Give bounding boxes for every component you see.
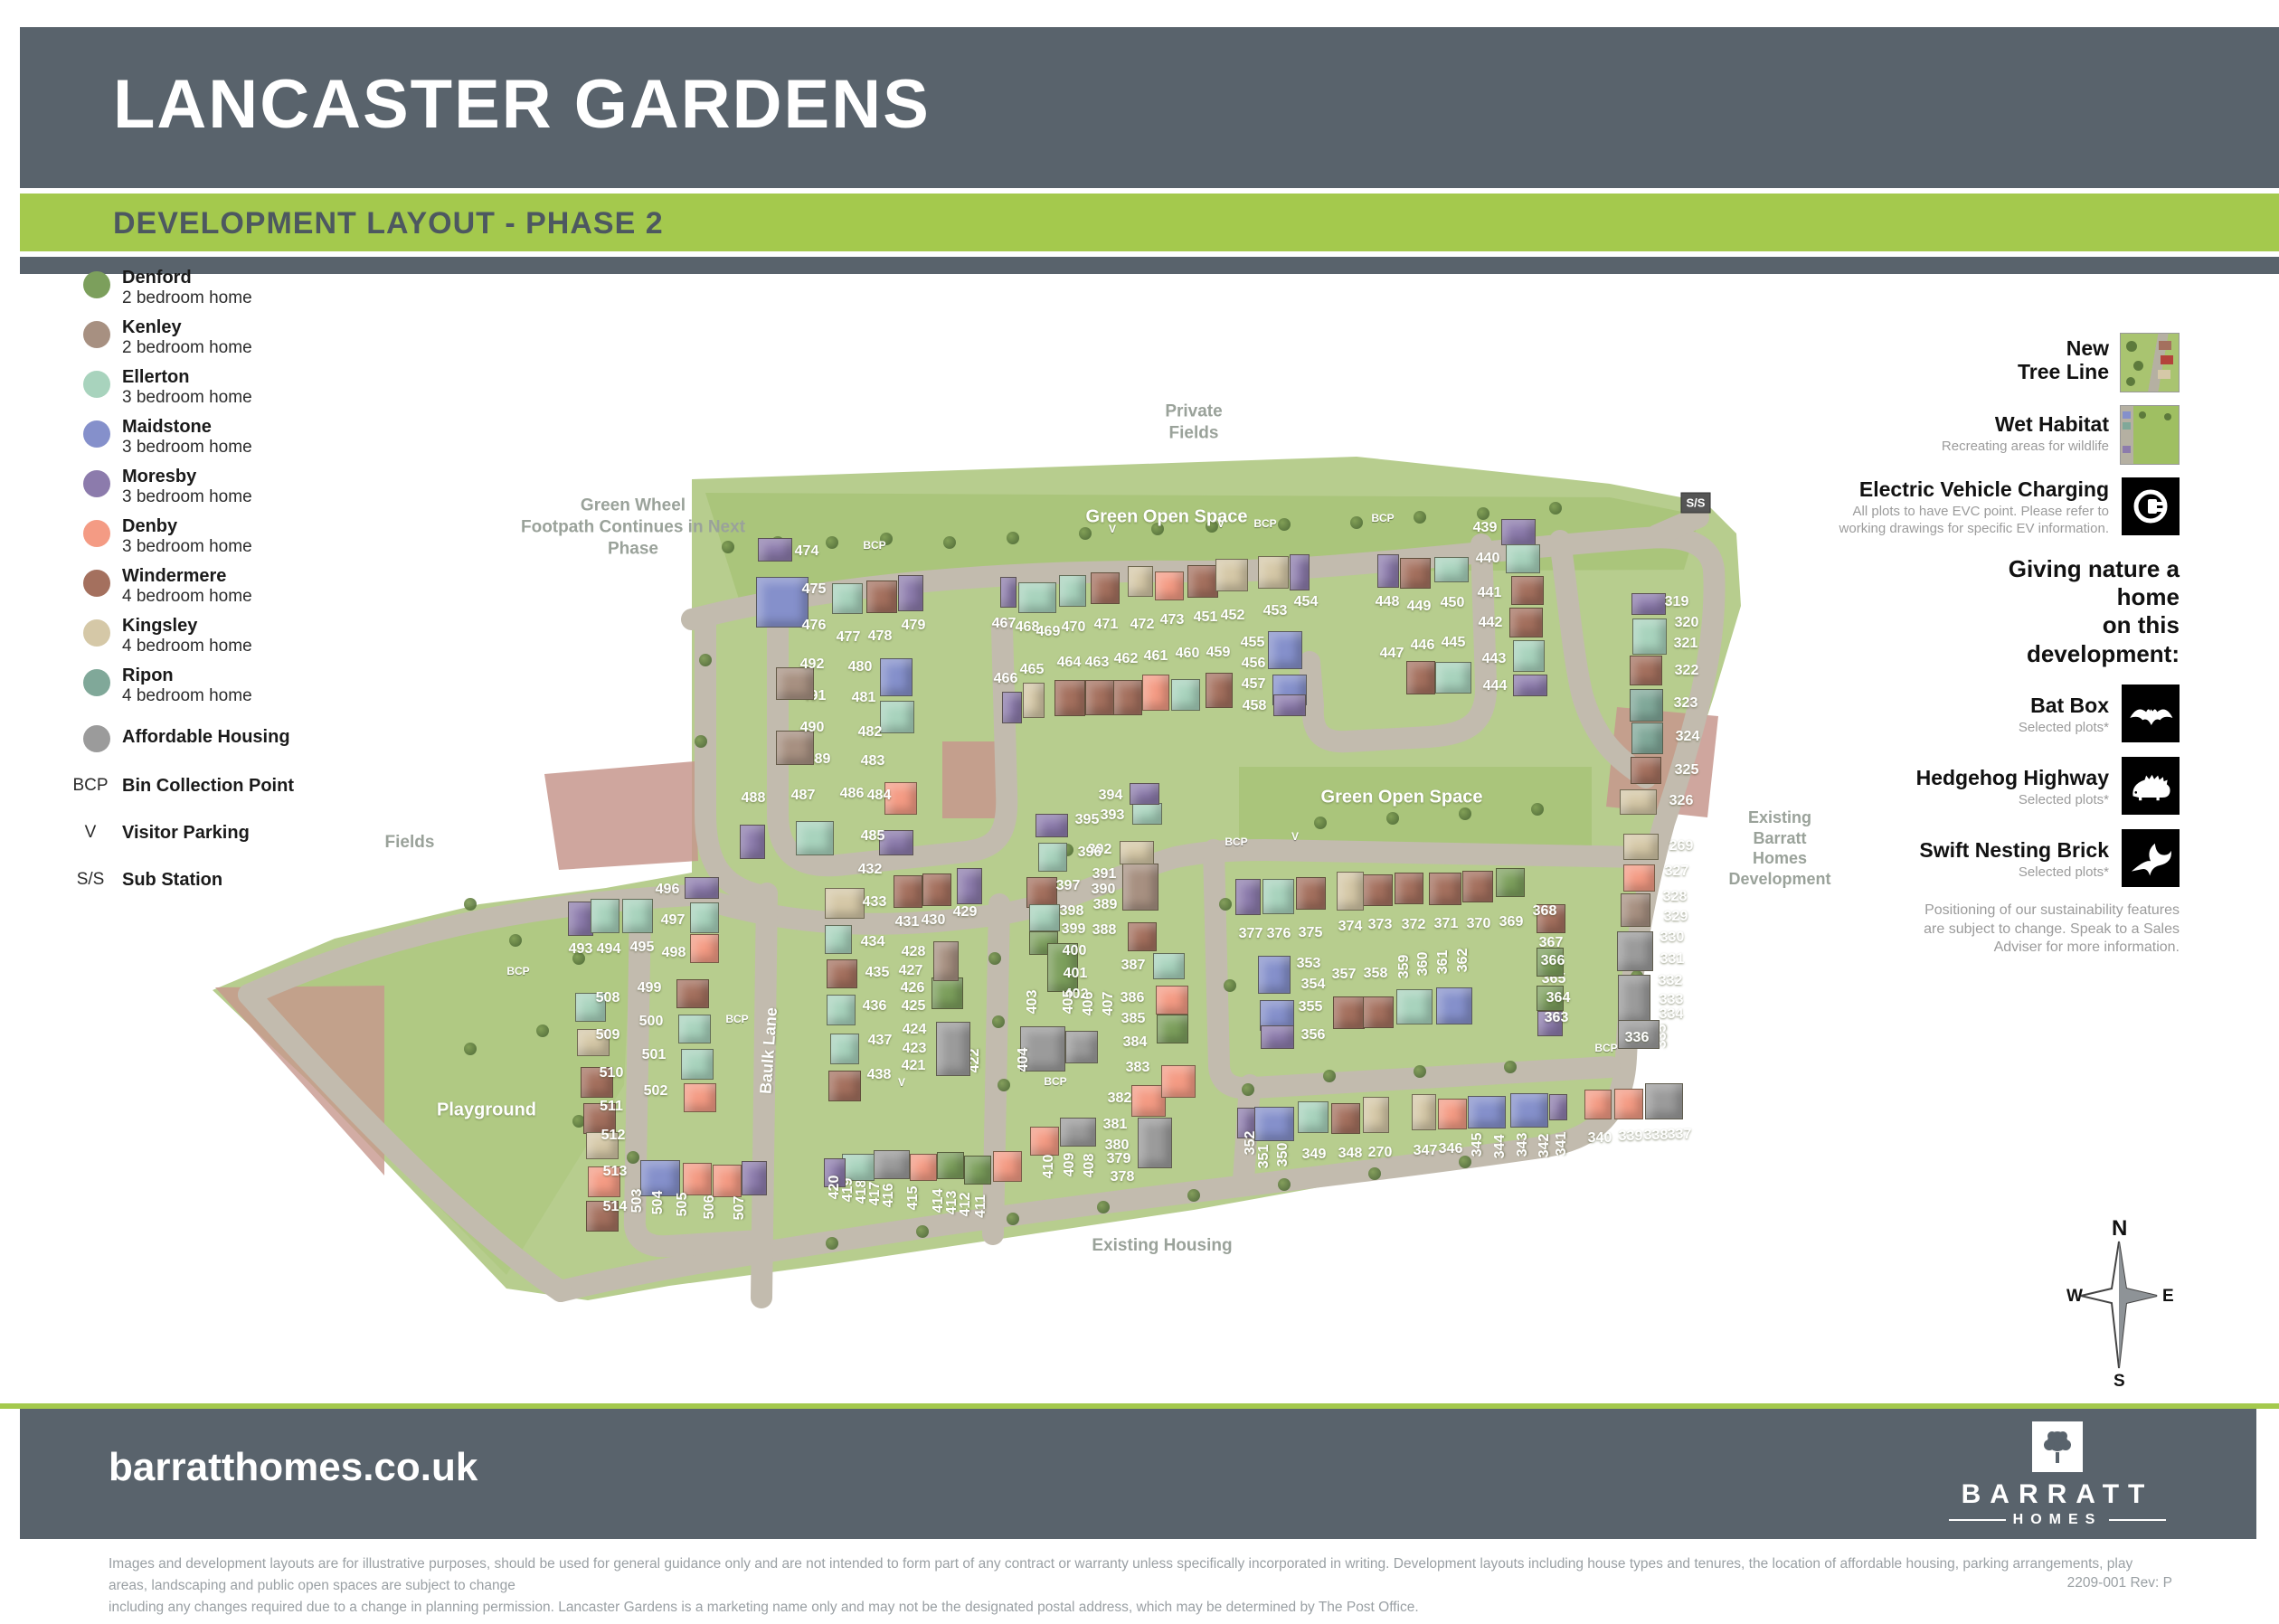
bat-icon — [2122, 685, 2180, 742]
plot-number: 425 — [902, 998, 926, 1015]
tree — [1386, 812, 1399, 825]
map-area-label: Green Open Space — [1321, 787, 1483, 809]
plot-house — [1296, 877, 1326, 910]
hedgehog-icon — [2122, 757, 2180, 815]
plot-number: 441 — [1478, 585, 1502, 601]
plot-number: 494 — [597, 941, 621, 958]
plot-house — [1438, 1099, 1467, 1129]
house-type-dot — [83, 420, 110, 448]
plot-number: 490 — [800, 720, 825, 736]
drawing-reference: 2209-001 Rev: P — [2067, 1575, 2172, 1591]
plot-number: 329 — [1664, 909, 1688, 925]
plot-house — [1363, 874, 1393, 906]
header-bar: LANCASTER GARDENS — [20, 27, 2279, 188]
plot-number: 458 — [1243, 698, 1267, 714]
plot-number: 364 — [1546, 990, 1571, 1006]
plot-house — [683, 1163, 712, 1195]
hedgehog-sub: Selected plots* — [1838, 792, 2109, 809]
plot-house — [1377, 554, 1399, 588]
plot-house — [1157, 1015, 1188, 1043]
plot-number: 326 — [1669, 793, 1694, 809]
plot-number: 324 — [1676, 729, 1700, 745]
plot-number: 338 — [1644, 1128, 1669, 1144]
tree — [826, 1237, 838, 1250]
plot-house — [922, 873, 951, 906]
plot-house — [1618, 975, 1650, 1024]
map-area-label: Private Fields — [1165, 401, 1222, 444]
tree — [464, 898, 477, 911]
plot-number: 465 — [1020, 662, 1045, 678]
plot-house — [1120, 841, 1154, 864]
footer-url[interactable]: barratthomes.co.uk — [109, 1445, 478, 1490]
symbol-key: V — [71, 823, 110, 843]
plot-number: 400 — [1063, 943, 1087, 959]
plot-number: 444 — [1483, 678, 1508, 694]
plot-house — [1060, 1118, 1096, 1147]
plot-house — [1395, 873, 1423, 904]
house-type-dot — [83, 271, 110, 298]
plot-number: 340 — [1588, 1130, 1612, 1147]
visitor-parking-marker: V — [1291, 830, 1299, 843]
plot-house — [825, 925, 852, 954]
plot-house — [1142, 675, 1169, 711]
plot-house — [1161, 1065, 1196, 1098]
nature-heading: Giving nature a home on this development… — [1953, 555, 2180, 668]
plot-number: 485 — [861, 828, 885, 845]
plot-number: 397 — [1056, 878, 1081, 894]
plot-house — [1363, 1097, 1389, 1133]
symbol-key: BCP — [71, 776, 110, 796]
plot-number: 394 — [1099, 788, 1123, 804]
plot-number: 407 — [1101, 992, 1117, 1016]
plot-number: 321 — [1674, 636, 1698, 652]
tree — [1549, 502, 1562, 515]
plot-house — [828, 1071, 861, 1101]
plot-number: 398 — [1060, 903, 1084, 920]
plot-house — [1065, 1031, 1098, 1063]
plot-house — [676, 979, 709, 1008]
house-type-name: Denby — [122, 516, 177, 537]
plot-number: 473 — [1160, 612, 1185, 628]
tree — [695, 735, 707, 748]
wet-habitat-row: Wet Habitat Recreating areas for wildlif… — [1953, 405, 2180, 465]
plot-number: 431 — [895, 914, 920, 930]
plot-number: 270 — [1368, 1145, 1393, 1161]
plot-house — [1623, 834, 1659, 860]
plot-house — [1513, 675, 1547, 696]
plot-house — [758, 538, 792, 562]
plot-house — [933, 941, 959, 981]
swift-icon — [2122, 829, 2180, 887]
plot-number: 423 — [903, 1041, 927, 1057]
affordable-dot — [83, 725, 110, 752]
bin-collection-marker: BCP — [1253, 517, 1276, 530]
plot-house — [1035, 814, 1068, 837]
plot-house — [684, 1083, 716, 1112]
plot-number: 360 — [1415, 952, 1432, 977]
plot-house — [825, 888, 865, 919]
plot-house — [880, 701, 914, 733]
plot-house — [1400, 558, 1431, 589]
plot-house — [1059, 575, 1086, 607]
symbol-key: S/S — [71, 870, 110, 890]
plot-house — [796, 821, 834, 855]
page-title: LANCASTER GARDENS — [113, 65, 931, 144]
plot-number: 386 — [1121, 990, 1145, 1006]
plot-number: 443 — [1482, 651, 1507, 667]
plot-number: 469 — [1036, 624, 1061, 640]
plot-number: 445 — [1442, 635, 1466, 651]
tree — [1187, 1189, 1200, 1202]
plot-number: 378 — [1111, 1169, 1135, 1185]
evc-title: Electric Vehicle Charging — [1838, 477, 2109, 501]
plot-house — [1023, 683, 1045, 718]
plot-number: 367 — [1539, 935, 1564, 951]
plot-number: 325 — [1675, 762, 1699, 779]
plot-number: 370 — [1467, 916, 1491, 932]
plot-number: 437 — [868, 1033, 893, 1049]
footer-bar: barratthomes.co.uk BARRATT HOMES — [20, 1409, 2256, 1539]
plot-number: 396 — [1078, 845, 1102, 861]
sustainability-note: Positioning of our sustainability featur… — [1908, 902, 2180, 958]
plot-house — [1085, 680, 1114, 715]
plot-house — [1436, 987, 1472, 1024]
plot-number: 331 — [1660, 951, 1685, 968]
plot-number: 343 — [1515, 1133, 1531, 1157]
plot-number: 342 — [1537, 1134, 1553, 1158]
tree — [627, 1151, 639, 1164]
tree — [1350, 516, 1363, 529]
hedgehog-row: Hedgehog Highway Selected plots* — [1953, 757, 2180, 817]
house-type-dot — [83, 669, 110, 696]
plot-house — [993, 1151, 1022, 1182]
header-subtitle-bar: DEVELOPMENT LAYOUT - PHASE 2 — [20, 194, 2279, 251]
plot-number: 479 — [902, 618, 926, 634]
plot-number: 361 — [1435, 950, 1452, 975]
tree — [1504, 1061, 1517, 1073]
plot-house — [568, 902, 593, 936]
plot-number: 454 — [1294, 594, 1319, 610]
plot-number: 427 — [899, 963, 923, 979]
plot-house — [827, 995, 856, 1025]
plot-number: 380 — [1105, 1138, 1130, 1154]
plot-number: 390 — [1092, 882, 1116, 898]
plot-number: 457 — [1242, 676, 1266, 693]
plot-house — [1623, 864, 1655, 892]
plot-number: 482 — [858, 724, 883, 741]
plot-number: 430 — [922, 912, 946, 929]
plot-house — [1298, 1101, 1329, 1133]
disclaimer-line-1: Images and development layouts are for i… — [109, 1556, 2132, 1593]
plot-number: 424 — [903, 1022, 927, 1038]
plot-house — [1258, 556, 1289, 589]
plot-house — [1621, 893, 1650, 927]
plot-number: 438 — [867, 1067, 892, 1083]
plot-number: 388 — [1092, 922, 1117, 939]
plot-number: 439 — [1473, 520, 1498, 536]
plot-number: 405 — [1061, 990, 1077, 1015]
page-subtitle: DEVELOPMENT LAYOUT - PHASE 2 — [113, 206, 664, 241]
visitor-parking-marker: V — [1109, 523, 1116, 535]
plot-house — [1620, 789, 1657, 815]
plot-number: 355 — [1299, 999, 1323, 1015]
plot-house — [1630, 689, 1663, 722]
plot-number: 399 — [1062, 921, 1086, 938]
plot-number: 345 — [1470, 1133, 1486, 1157]
plot-number: 461 — [1144, 648, 1168, 665]
compass-rose: N W E S — [2066, 1216, 2175, 1397]
plot-number: 356 — [1301, 1027, 1326, 1043]
tree — [1459, 1156, 1471, 1168]
tree — [1278, 518, 1291, 531]
map-area-label: Existing Barratt Homes Development — [1728, 807, 1830, 889]
sustainability-panel: New Tree Line Wet Habitat Recreating are… — [1953, 333, 2180, 958]
plot-number: 440 — [1476, 551, 1500, 567]
house-type-name: Denford — [122, 268, 192, 288]
compass-star — [2066, 1216, 2175, 1397]
plot-house — [1153, 953, 1185, 979]
plot-number: 377 — [1239, 926, 1263, 942]
tree — [509, 934, 522, 947]
plot-house — [1396, 989, 1433, 1024]
tree — [1097, 1201, 1110, 1213]
barratt-tree-icon — [2032, 1421, 2083, 1472]
plot-number: 497 — [661, 912, 686, 929]
plot-house — [713, 1165, 742, 1197]
visitor-parking-marker: V — [1217, 517, 1225, 530]
plot-number: 453 — [1263, 603, 1288, 619]
plot-house — [1254, 1107, 1294, 1141]
plot-house — [1128, 566, 1153, 597]
ev-charging-icon — [2122, 477, 2180, 535]
plot-number: 436 — [863, 998, 887, 1015]
tree — [916, 1225, 929, 1238]
plot-number: 481 — [852, 690, 876, 706]
tree — [1242, 1083, 1254, 1096]
plot-number: 463 — [1085, 655, 1110, 671]
wet-habitat-thumbnail — [2120, 405, 2180, 465]
plot-number: 323 — [1674, 695, 1698, 712]
plot-house — [1235, 879, 1261, 915]
plot-house — [1406, 661, 1435, 694]
plot-house — [1412, 1094, 1436, 1130]
plot-house — [1632, 618, 1667, 655]
plot-number: 448 — [1376, 594, 1400, 610]
plot-number: 433 — [863, 894, 887, 911]
tree-line-thumbnail — [2120, 333, 2180, 392]
plot-number: 401 — [1064, 966, 1088, 982]
plot-number: 384 — [1123, 1034, 1148, 1051]
plot-house — [1091, 572, 1120, 604]
bin-collection-marker: BCP — [863, 539, 885, 552]
plot-number: 514 — [603, 1199, 628, 1215]
plot-number: 366 — [1541, 953, 1565, 969]
plot-house — [681, 1049, 714, 1080]
plot-house — [1113, 680, 1142, 715]
plot-house — [1268, 631, 1302, 669]
plot-house — [937, 1152, 964, 1179]
house-type-name: Kingsley — [122, 616, 197, 637]
plot-house — [1631, 593, 1666, 615]
plot-number: 476 — [802, 618, 827, 634]
tree — [1278, 1178, 1291, 1191]
plot-house — [1002, 692, 1022, 723]
plot-house — [1435, 662, 1471, 694]
plot-number: 472 — [1130, 617, 1155, 633]
plot-house — [685, 877, 719, 899]
plot-house — [1331, 1103, 1360, 1134]
plot-house — [1132, 803, 1162, 825]
house-type-dot — [83, 619, 110, 647]
house-type-dot — [83, 570, 110, 597]
plot-number: 327 — [1665, 864, 1689, 880]
map-canvas: 4744754764774784794804814824834844854864… — [199, 271, 1827, 1402]
plot-number: 385 — [1121, 1011, 1146, 1027]
plot-number: 432 — [858, 862, 883, 878]
plot-number: 357 — [1332, 967, 1357, 983]
plot-house — [827, 959, 857, 988]
plot-house — [1038, 843, 1067, 872]
plot-house — [866, 581, 897, 613]
tree — [1368, 1167, 1381, 1180]
house-type-name: Moresby — [122, 467, 196, 487]
plot-number: 375 — [1299, 925, 1323, 941]
plot-number: 341 — [1554, 1132, 1570, 1157]
plot-house — [1549, 1094, 1567, 1120]
tree — [998, 1079, 1010, 1091]
plot-house — [874, 1150, 910, 1179]
tree — [1079, 527, 1092, 540]
plot-number: 501 — [642, 1047, 667, 1063]
plot-number: 328 — [1663, 889, 1688, 905]
page: LANCASTER GARDENS DEVELOPMENT LAYOUT - P… — [0, 0, 2279, 1624]
plot-number: 349 — [1302, 1147, 1327, 1163]
plot-number: 467 — [992, 616, 1017, 632]
plot-number: 411 — [973, 1194, 989, 1218]
plot-house — [1138, 1118, 1172, 1168]
tree — [1314, 817, 1327, 829]
disclaimer-line-2: including any changes required due to a … — [109, 1600, 1419, 1615]
plot-number: 429 — [953, 904, 978, 921]
plot-number: 484 — [867, 788, 892, 804]
bin-collection-marker: BCP — [506, 965, 529, 977]
bin-collection-marker: BCP — [1371, 512, 1394, 524]
plot-number: 446 — [1411, 637, 1435, 654]
plot-number: 495 — [630, 939, 655, 956]
plot-house — [1258, 956, 1291, 994]
plot-house — [830, 1034, 859, 1064]
plot-number: 478 — [868, 628, 893, 645]
house-type-dot — [83, 470, 110, 497]
plot-house — [678, 1015, 711, 1043]
bin-collection-marker: BCP — [725, 1013, 748, 1025]
plot-number: 359 — [1396, 955, 1413, 979]
plot-number: 353 — [1297, 956, 1321, 972]
tree — [464, 1043, 477, 1055]
house-type-dot — [83, 321, 110, 348]
plot-house — [740, 825, 765, 859]
plot-number: 383 — [1126, 1060, 1150, 1076]
plot-house — [1509, 608, 1543, 637]
plot-house — [1513, 640, 1545, 672]
plot-number: 368 — [1533, 903, 1557, 920]
plot-number: 352 — [1243, 1131, 1259, 1156]
tree — [988, 952, 1001, 965]
bat-title: Bat Box — [1838, 694, 2109, 717]
plot-number: 496 — [656, 882, 680, 898]
plot-number: 410 — [1041, 1155, 1057, 1179]
bat-box-row: Bat Box Selected plots* — [1953, 685, 2180, 744]
plot-number: 447 — [1380, 646, 1404, 662]
plot-house — [1511, 576, 1544, 605]
footer-disclaimer: Images and development layouts are for i… — [109, 1553, 2170, 1619]
plot-number: 477 — [837, 629, 861, 646]
wet-habitat-title: Wet Habitat — [1838, 412, 2109, 436]
plot-number: 470 — [1062, 619, 1086, 636]
plot-number: 348 — [1338, 1146, 1363, 1162]
plot-house — [1000, 577, 1017, 608]
tree — [1007, 532, 1019, 544]
plot-house — [832, 583, 863, 614]
plot-number: 382 — [1108, 1091, 1132, 1107]
plot-number: 415 — [905, 1186, 922, 1211]
plot-number: 387 — [1121, 958, 1146, 974]
plot-number: 428 — [902, 944, 926, 960]
tree — [1477, 507, 1489, 520]
plot-number: 320 — [1675, 615, 1699, 631]
plot-number: 406 — [1081, 992, 1097, 1016]
plot-house — [1054, 680, 1085, 716]
plot-house — [1631, 757, 1661, 784]
plot-house — [1630, 656, 1662, 685]
plot-number: 358 — [1364, 966, 1388, 982]
plot-number: 376 — [1267, 926, 1291, 942]
tree — [826, 536, 838, 549]
plot-number: 426 — [901, 980, 925, 996]
plot-number: 507 — [732, 1196, 748, 1221]
plot-house — [964, 1156, 991, 1185]
plot-house — [1273, 694, 1306, 716]
plot-number: 442 — [1479, 615, 1503, 631]
plot-house — [690, 934, 719, 963]
plot-number: 421 — [902, 1058, 926, 1074]
bat-sub: Selected plots* — [1838, 720, 2109, 737]
plot-house — [1617, 931, 1653, 971]
plot-number: 500 — [639, 1014, 664, 1030]
plot-house — [1155, 571, 1184, 600]
plot-house — [898, 575, 923, 611]
plot-number: 330 — [1660, 930, 1685, 946]
plot-house — [1030, 1127, 1059, 1156]
plot-number: 488 — [742, 790, 766, 807]
plot-house — [1215, 559, 1248, 591]
plot-number: 456 — [1242, 656, 1266, 672]
tree — [699, 654, 712, 666]
plot-house — [1290, 554, 1310, 590]
plot-house — [1496, 868, 1525, 897]
plot-number: 492 — [800, 656, 825, 673]
plot-number: 435 — [865, 965, 890, 981]
plot-house — [1337, 872, 1364, 911]
evc-sub: All plots to have EVC point. Please refe… — [1838, 504, 2109, 538]
plot-number: 483 — [861, 753, 885, 770]
plot-house — [591, 899, 619, 933]
plot-number: 371 — [1434, 916, 1459, 932]
tree — [1414, 1065, 1426, 1078]
plot-number: 493 — [569, 941, 593, 958]
map-area-label: Baulk Lane — [755, 1006, 781, 1094]
plot-number: 475 — [802, 581, 827, 598]
